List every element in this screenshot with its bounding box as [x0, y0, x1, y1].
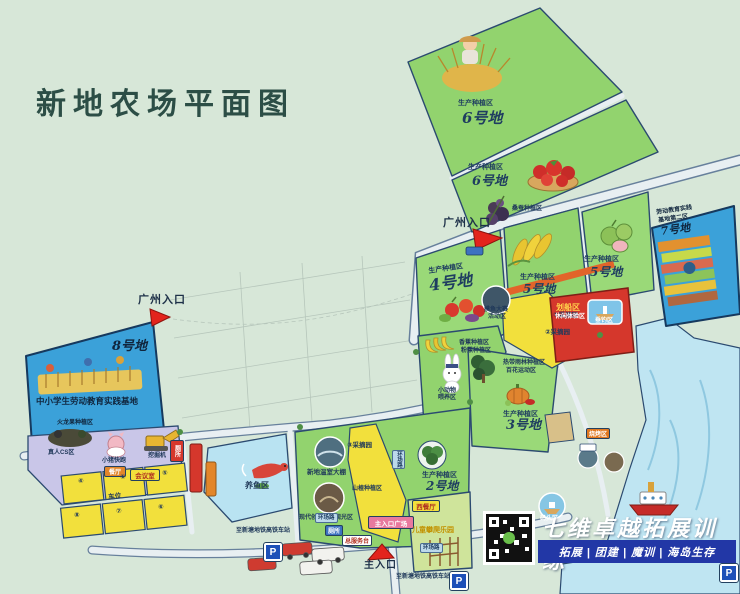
parking-cell: ⑥	[158, 504, 164, 511]
parking-cell: ④	[78, 478, 84, 485]
cs-label: 真人CS区	[48, 450, 74, 457]
banana-label: 香蕉种植区	[459, 340, 489, 347]
banana2-label: 粉蕉种植区	[461, 348, 491, 355]
fishing-block	[550, 288, 634, 362]
pig-label: 小猪快跑	[102, 458, 126, 465]
bbq-sign: 烧烤区	[586, 428, 610, 439]
road-sign	[466, 247, 483, 255]
plot5guava-zone: 生产种植区	[584, 256, 619, 264]
climbing-park-label: 儿童攀爬乐园	[412, 527, 454, 535]
parking-cell: ①	[120, 474, 126, 481]
mulberry-label: 桑蚕种植区	[512, 206, 542, 213]
red-board-sign	[190, 444, 202, 492]
plot2-num: 2号地	[426, 480, 458, 494]
hawthorn-label: 山楂种植区	[352, 486, 382, 493]
pond-label: 养鱼区	[245, 481, 269, 490]
boat-area-label: 划船区	[556, 303, 580, 312]
moyu-label-1: 摸鱼大赛	[484, 307, 508, 314]
leisure-label: 休闲体验区	[555, 314, 585, 321]
station-text: 至新塘地铁高铁车站	[236, 528, 290, 535]
plot5guava-num: 5号地	[590, 266, 622, 280]
farm-map: 新地农场平面图 广州入口 广州入口 主入口 主入口广场 生产种植区 6号地 生产…	[0, 0, 740, 594]
plot6a-zone: 生产种植区	[458, 100, 493, 108]
entrance-guangzhou-left: 广州入口	[138, 294, 186, 307]
moyu-label-2: 活动区	[488, 314, 506, 321]
rabbit-label-1: 小动物	[438, 388, 456, 395]
map-title: 新地农场平面图	[36, 88, 295, 123]
fish-pond	[204, 434, 292, 522]
parking-label: 车位	[108, 493, 122, 502]
parking-cell: ⑧	[74, 512, 80, 519]
parking-p-sign: P	[450, 572, 468, 590]
flower-label: 百花运动区	[506, 368, 536, 375]
toilet-sign: 厕所	[170, 440, 184, 462]
plot3-num: 3号地	[506, 419, 541, 434]
ring-road-tag: 环场路	[315, 513, 338, 523]
toilet-sign: 厕所	[325, 525, 343, 536]
fishing-photo-label: 垂钓区	[595, 318, 613, 325]
plot5corn-zone: 生产种植区	[520, 274, 555, 282]
rabbit-label-2: 喂养区	[438, 395, 456, 402]
plot6a-num: 6号地	[462, 110, 502, 127]
plot8-sub: 火龙果种植区	[57, 420, 93, 427]
entrance-main: 主入口	[364, 560, 397, 572]
western-restaurant-sign: 西餐厅	[412, 500, 440, 512]
ring-road-tag: 环场路	[392, 450, 405, 469]
plot8-name: 中小学生劳动教育实践基地	[36, 397, 138, 407]
plot5corn-num: 5号地	[523, 283, 555, 297]
plot6b-num: 6号地	[472, 175, 507, 190]
watermark-services: 拓展 | 团建 | 魔训 | 海岛生存	[538, 540, 736, 563]
entrance-guangzhou-top: 广州入口	[443, 217, 491, 230]
broccoli-art	[418, 441, 446, 469]
plot6b-zone: 生产种植区	[468, 164, 503, 172]
qr-code	[483, 511, 535, 565]
picking2-label: ②采摘园	[545, 329, 570, 336]
greenhouse-label: 新地温室大棚	[307, 469, 346, 476]
digger-label: 挖掘机	[148, 453, 166, 460]
service-desk-sign: 总服务台	[342, 535, 372, 546]
ring-road-tag: 环场路	[420, 543, 443, 553]
rainforest-label: 热带雨林种植区	[503, 360, 545, 367]
picking3-label: ③采摘园	[347, 442, 372, 449]
parking-cell: ⑤	[162, 470, 168, 477]
meeting-room-sign: 会议室	[130, 469, 160, 481]
main-plaza-sign: 主入口广场	[368, 516, 414, 529]
parking-cell: ⑦	[116, 508, 122, 515]
orange-board-sign	[206, 462, 216, 496]
station-text: 至新塘地铁高铁车站	[396, 574, 450, 581]
plot8-num: 8号地	[112, 340, 147, 355]
parking-p-sign: P	[264, 543, 282, 561]
